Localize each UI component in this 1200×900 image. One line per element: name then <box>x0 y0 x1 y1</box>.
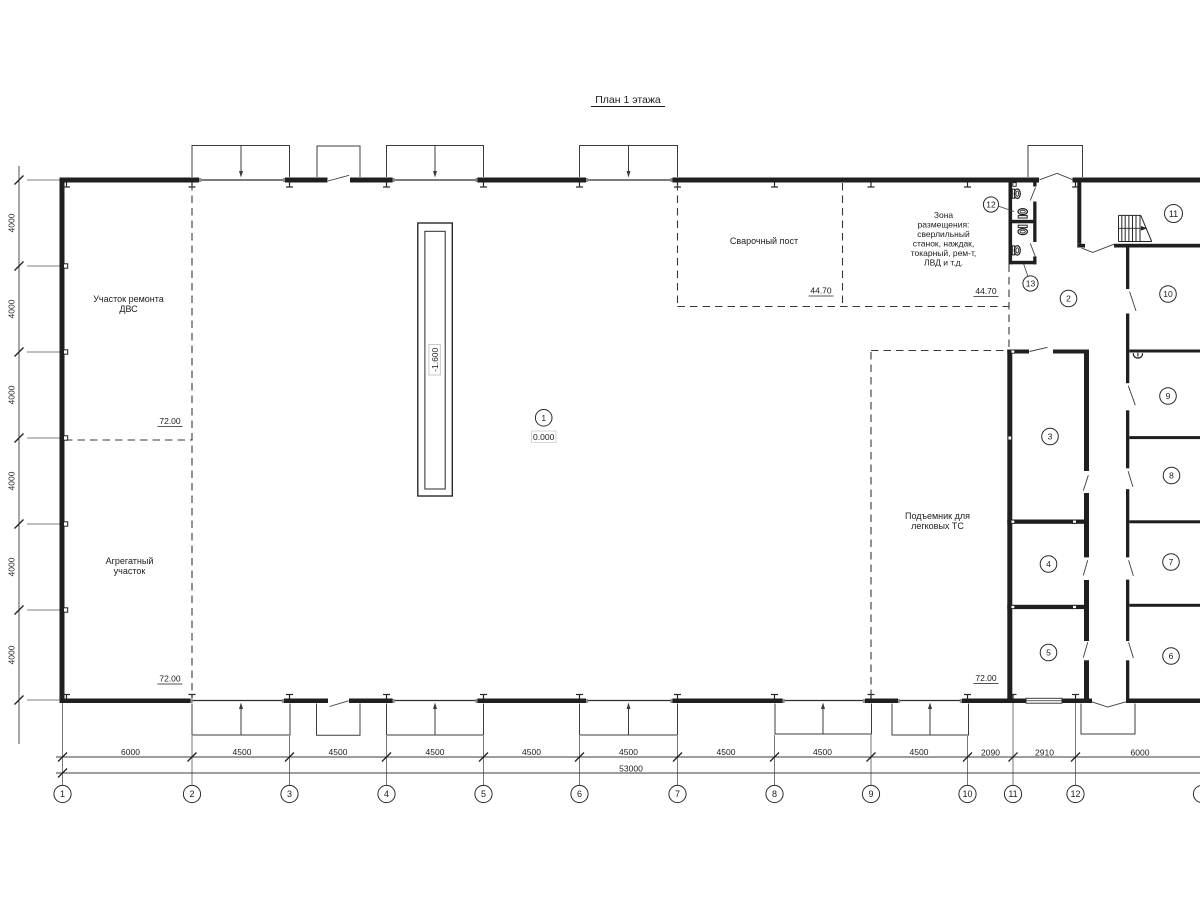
svg-text:4: 4 <box>384 789 389 799</box>
svg-text:10: 10 <box>962 789 972 799</box>
svg-text:сверлильный: сверлильный <box>917 229 970 239</box>
svg-text:11: 11 <box>1008 789 1017 799</box>
svg-text:4500: 4500 <box>522 747 541 757</box>
svg-text:Подъемник для: Подъемник для <box>905 511 970 521</box>
svg-text:Участок ремонта: Участок ремонта <box>93 294 164 304</box>
svg-text:2: 2 <box>1066 294 1071 304</box>
svg-text:4500: 4500 <box>717 747 736 757</box>
svg-text:4500: 4500 <box>910 747 929 757</box>
svg-text:токарный, рем-т,: токарный, рем-т, <box>911 248 977 258</box>
svg-text:4000: 4000 <box>7 385 17 404</box>
svg-text:4000: 4000 <box>7 213 17 232</box>
svg-text:размещения:: размещения: <box>918 220 970 230</box>
svg-text:ЛВД и т.д.: ЛВД и т.д. <box>924 258 963 268</box>
svg-text:72.00: 72.00 <box>975 673 997 683</box>
svg-text:8: 8 <box>1169 471 1174 481</box>
svg-text:4500: 4500 <box>813 747 832 757</box>
svg-text:12: 12 <box>986 200 996 210</box>
svg-text:3: 3 <box>1048 432 1053 442</box>
svg-text:6000: 6000 <box>121 747 140 757</box>
svg-text:План 1 этажа: План 1 этажа <box>595 94 661 106</box>
svg-text:4500: 4500 <box>619 747 638 757</box>
svg-text:53000: 53000 <box>619 764 643 774</box>
svg-text:44.70: 44.70 <box>810 286 832 296</box>
svg-text:Зона: Зона <box>934 210 954 220</box>
svg-text:11: 11 <box>1169 209 1178 219</box>
svg-text:7: 7 <box>675 789 680 799</box>
svg-text:0.000: 0.000 <box>533 432 555 442</box>
svg-text:4000: 4000 <box>7 299 17 318</box>
svg-text:12: 12 <box>1070 789 1080 799</box>
svg-text:10: 10 <box>1163 289 1173 299</box>
svg-text:ДВС: ДВС <box>119 304 138 314</box>
svg-text:легковых ТС: легковых ТС <box>911 521 964 531</box>
svg-text:8: 8 <box>772 789 777 799</box>
svg-text:2090: 2090 <box>981 748 1000 758</box>
svg-text:4500: 4500 <box>233 747 252 757</box>
svg-text:участок: участок <box>114 566 146 576</box>
svg-text:1: 1 <box>541 413 546 423</box>
svg-text:44.70: 44.70 <box>975 286 997 296</box>
svg-text:3: 3 <box>287 789 292 799</box>
svg-text:6: 6 <box>1169 651 1174 661</box>
svg-text:9: 9 <box>1166 391 1171 401</box>
svg-text:1: 1 <box>60 789 65 799</box>
svg-text:Сварочный пост: Сварочный пост <box>730 236 798 246</box>
svg-text:72.00: 72.00 <box>159 416 181 426</box>
svg-text:4500: 4500 <box>426 747 445 757</box>
svg-text:2910: 2910 <box>1035 748 1054 758</box>
svg-text:5: 5 <box>1046 648 1051 658</box>
svg-text:9: 9 <box>868 789 873 799</box>
svg-text:4000: 4000 <box>7 557 17 576</box>
svg-text:5: 5 <box>481 789 486 799</box>
svg-text:6000: 6000 <box>1131 748 1150 758</box>
svg-text:7: 7 <box>1169 557 1174 567</box>
svg-text:4500: 4500 <box>329 747 348 757</box>
svg-text:6: 6 <box>577 789 582 799</box>
svg-text:4: 4 <box>1046 559 1051 569</box>
svg-text:13: 13 <box>1026 279 1036 289</box>
svg-text:4000: 4000 <box>7 645 17 664</box>
svg-text:2: 2 <box>189 789 194 799</box>
svg-text:72.00: 72.00 <box>159 674 181 684</box>
svg-text:4000: 4000 <box>7 471 17 490</box>
svg-text:Агрегатный: Агрегатный <box>106 556 154 566</box>
svg-text:-1.600: -1.600 <box>430 347 440 371</box>
svg-text:станок, наждак,: станок, наждак, <box>913 239 975 249</box>
